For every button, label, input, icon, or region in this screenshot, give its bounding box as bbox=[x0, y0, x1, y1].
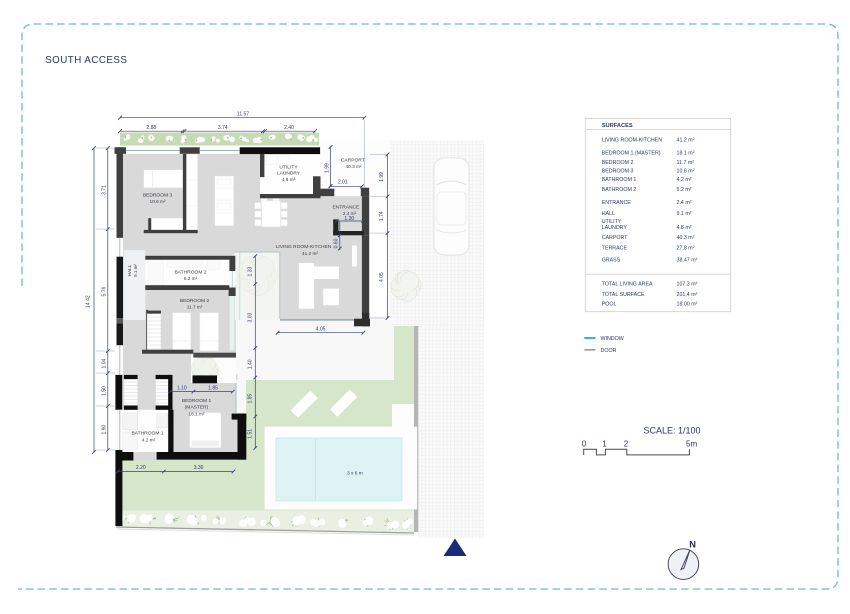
svg-text:2.4 m²: 2.4 m² bbox=[677, 200, 692, 206]
svg-text:1: 1 bbox=[602, 440, 607, 449]
svg-text:1.04: 1.04 bbox=[102, 359, 108, 369]
svg-text:HALL: HALL bbox=[602, 211, 615, 217]
svg-text:BEDROOM 1 (MASTER): BEDROOM 1 (MASTER) bbox=[602, 151, 661, 157]
svg-text:BEDROOM 3: BEDROOM 3 bbox=[143, 193, 173, 199]
svg-text:1.30: 1.30 bbox=[344, 216, 354, 222]
svg-text:3 x 6 m: 3 x 6 m bbox=[347, 471, 363, 477]
svg-text:BATHROOM 2: BATHROOM 2 bbox=[175, 270, 207, 276]
svg-text:CARPORT: CARPORT bbox=[341, 158, 365, 164]
svg-text:1.99: 1.99 bbox=[324, 163, 330, 173]
svg-text:UTILITY: UTILITY bbox=[279, 165, 298, 171]
svg-text:N: N bbox=[689, 540, 696, 550]
svg-text:CARPORT: CARPORT bbox=[602, 235, 629, 241]
svg-text:41.2 m²: 41.2 m² bbox=[302, 251, 318, 256]
svg-text:GRASS: GRASS bbox=[602, 258, 621, 264]
svg-text:HALL: HALL bbox=[127, 264, 132, 276]
svg-text:TOTAL SURFACE: TOTAL SURFACE bbox=[602, 292, 645, 298]
svg-text:5.76: 5.76 bbox=[102, 287, 108, 297]
svg-text:LIVING ROOM-KITCHEN: LIVING ROOM-KITCHEN bbox=[276, 244, 332, 250]
svg-text:BEDROOM 2: BEDROOM 2 bbox=[602, 160, 634, 166]
svg-text:LAUNDRY: LAUNDRY bbox=[602, 225, 628, 231]
svg-text:18.1 m²: 18.1 m² bbox=[189, 412, 205, 417]
svg-text:TOTAL LIVING AREA: TOTAL LIVING AREA bbox=[602, 282, 653, 288]
svg-text:107.3 m²: 107.3 m² bbox=[677, 282, 698, 288]
svg-text:1.74: 1.74 bbox=[379, 211, 385, 221]
svg-text:4.05: 4.05 bbox=[316, 327, 326, 333]
svg-text:2.01: 2.01 bbox=[338, 180, 348, 186]
svg-text:2.20: 2.20 bbox=[136, 465, 146, 471]
svg-text:BATHROOM 1: BATHROOM 1 bbox=[602, 177, 637, 183]
svg-text:40.3 m²: 40.3 m² bbox=[346, 164, 362, 169]
svg-text:201,4 m²: 201,4 m² bbox=[677, 292, 698, 298]
svg-text:(MASTER): (MASTER) bbox=[185, 405, 209, 411]
svg-text:3.03: 3.03 bbox=[248, 313, 254, 323]
svg-text:SOUTH ACCESS: SOUTH ACCESS bbox=[45, 55, 127, 66]
svg-text:1.33: 1.33 bbox=[248, 267, 254, 277]
svg-text:1.50: 1.50 bbox=[102, 386, 108, 396]
svg-text:11.7 m²: 11.7 m² bbox=[677, 160, 695, 166]
svg-text:3.71: 3.71 bbox=[102, 185, 108, 195]
svg-text:27.8 m²: 27.8 m² bbox=[677, 246, 695, 252]
svg-text:38.47 m²: 38.47 m² bbox=[677, 258, 698, 264]
svg-text:BEDROOM 2: BEDROOM 2 bbox=[180, 298, 210, 304]
svg-text:9.1 m²: 9.1 m² bbox=[677, 211, 692, 217]
svg-text:0: 0 bbox=[582, 440, 587, 449]
svg-text:1.85: 1.85 bbox=[248, 394, 254, 404]
svg-text:5.2 m²: 5.2 m² bbox=[677, 187, 692, 193]
svg-text:1.90: 1.90 bbox=[102, 425, 108, 435]
svg-text:BEDROOM 3: BEDROOM 3 bbox=[602, 169, 634, 175]
svg-text:40.3 m²: 40.3 m² bbox=[677, 235, 695, 241]
svg-text:2.88: 2.88 bbox=[146, 125, 156, 131]
svg-text:4.2 m²: 4.2 m² bbox=[142, 438, 156, 443]
svg-text:4.05: 4.05 bbox=[379, 272, 385, 282]
svg-text:10.6 m²: 10.6 m² bbox=[677, 169, 695, 175]
svg-text:POOL: POOL bbox=[602, 302, 617, 308]
svg-text:LIVING ROOM-KITCHEN: LIVING ROOM-KITCHEN bbox=[602, 138, 663, 144]
svg-text:DOOR: DOOR bbox=[601, 348, 617, 354]
svg-text:2.4 m²: 2.4 m² bbox=[343, 211, 357, 216]
svg-text:3.30: 3.30 bbox=[194, 465, 204, 471]
svg-text:2: 2 bbox=[624, 440, 629, 449]
svg-text:9.1 m²: 9.1 m² bbox=[133, 264, 138, 277]
svg-text:1.10: 1.10 bbox=[177, 385, 187, 391]
svg-text:BATHROOM 2: BATHROOM 2 bbox=[602, 187, 637, 193]
svg-text:5m: 5m bbox=[686, 440, 697, 449]
svg-text:4.8 m²: 4.8 m² bbox=[677, 225, 692, 231]
svg-text:11.57: 11.57 bbox=[237, 112, 249, 118]
svg-text:WINDOW: WINDOW bbox=[601, 336, 624, 342]
svg-text:ENTRANCE: ENTRANCE bbox=[332, 205, 360, 211]
svg-text:1.51: 1.51 bbox=[248, 429, 254, 439]
svg-text:10.6 m²: 10.6 m² bbox=[150, 199, 166, 204]
svg-text:1.99: 1.99 bbox=[379, 172, 385, 182]
svg-text:4.2 m²: 4.2 m² bbox=[677, 177, 692, 183]
svg-text:3.74: 3.74 bbox=[218, 125, 228, 131]
svg-text:14.42: 14.42 bbox=[86, 295, 92, 308]
svg-text:ENTRANCE: ENTRANCE bbox=[602, 200, 632, 206]
svg-text:LAUNDRY: LAUNDRY bbox=[277, 171, 301, 177]
svg-text:2.40: 2.40 bbox=[284, 125, 294, 131]
svg-text:41.2 m²: 41.2 m² bbox=[677, 138, 695, 144]
svg-text:1.85: 1.85 bbox=[208, 385, 218, 391]
svg-text:SURFACES: SURFACES bbox=[602, 123, 633, 129]
svg-text:4.8 m²: 4.8 m² bbox=[282, 177, 296, 182]
svg-text:18.00 m²: 18.00 m² bbox=[677, 302, 698, 308]
svg-text:BEDROOM 1: BEDROOM 1 bbox=[182, 398, 212, 404]
svg-text:0.60: 0.60 bbox=[334, 238, 340, 248]
svg-text:BATHROOM 1: BATHROOM 1 bbox=[132, 431, 164, 437]
svg-text:1.40: 1.40 bbox=[248, 359, 254, 369]
svg-text:11.7 m²: 11.7 m² bbox=[187, 305, 203, 310]
svg-text:18.1 m²: 18.1 m² bbox=[677, 151, 695, 157]
svg-text:5.2 m²: 5.2 m² bbox=[184, 276, 198, 281]
svg-text:TERRACE: TERRACE bbox=[602, 246, 628, 252]
svg-text:SCALE: 1/100: SCALE: 1/100 bbox=[644, 426, 701, 436]
